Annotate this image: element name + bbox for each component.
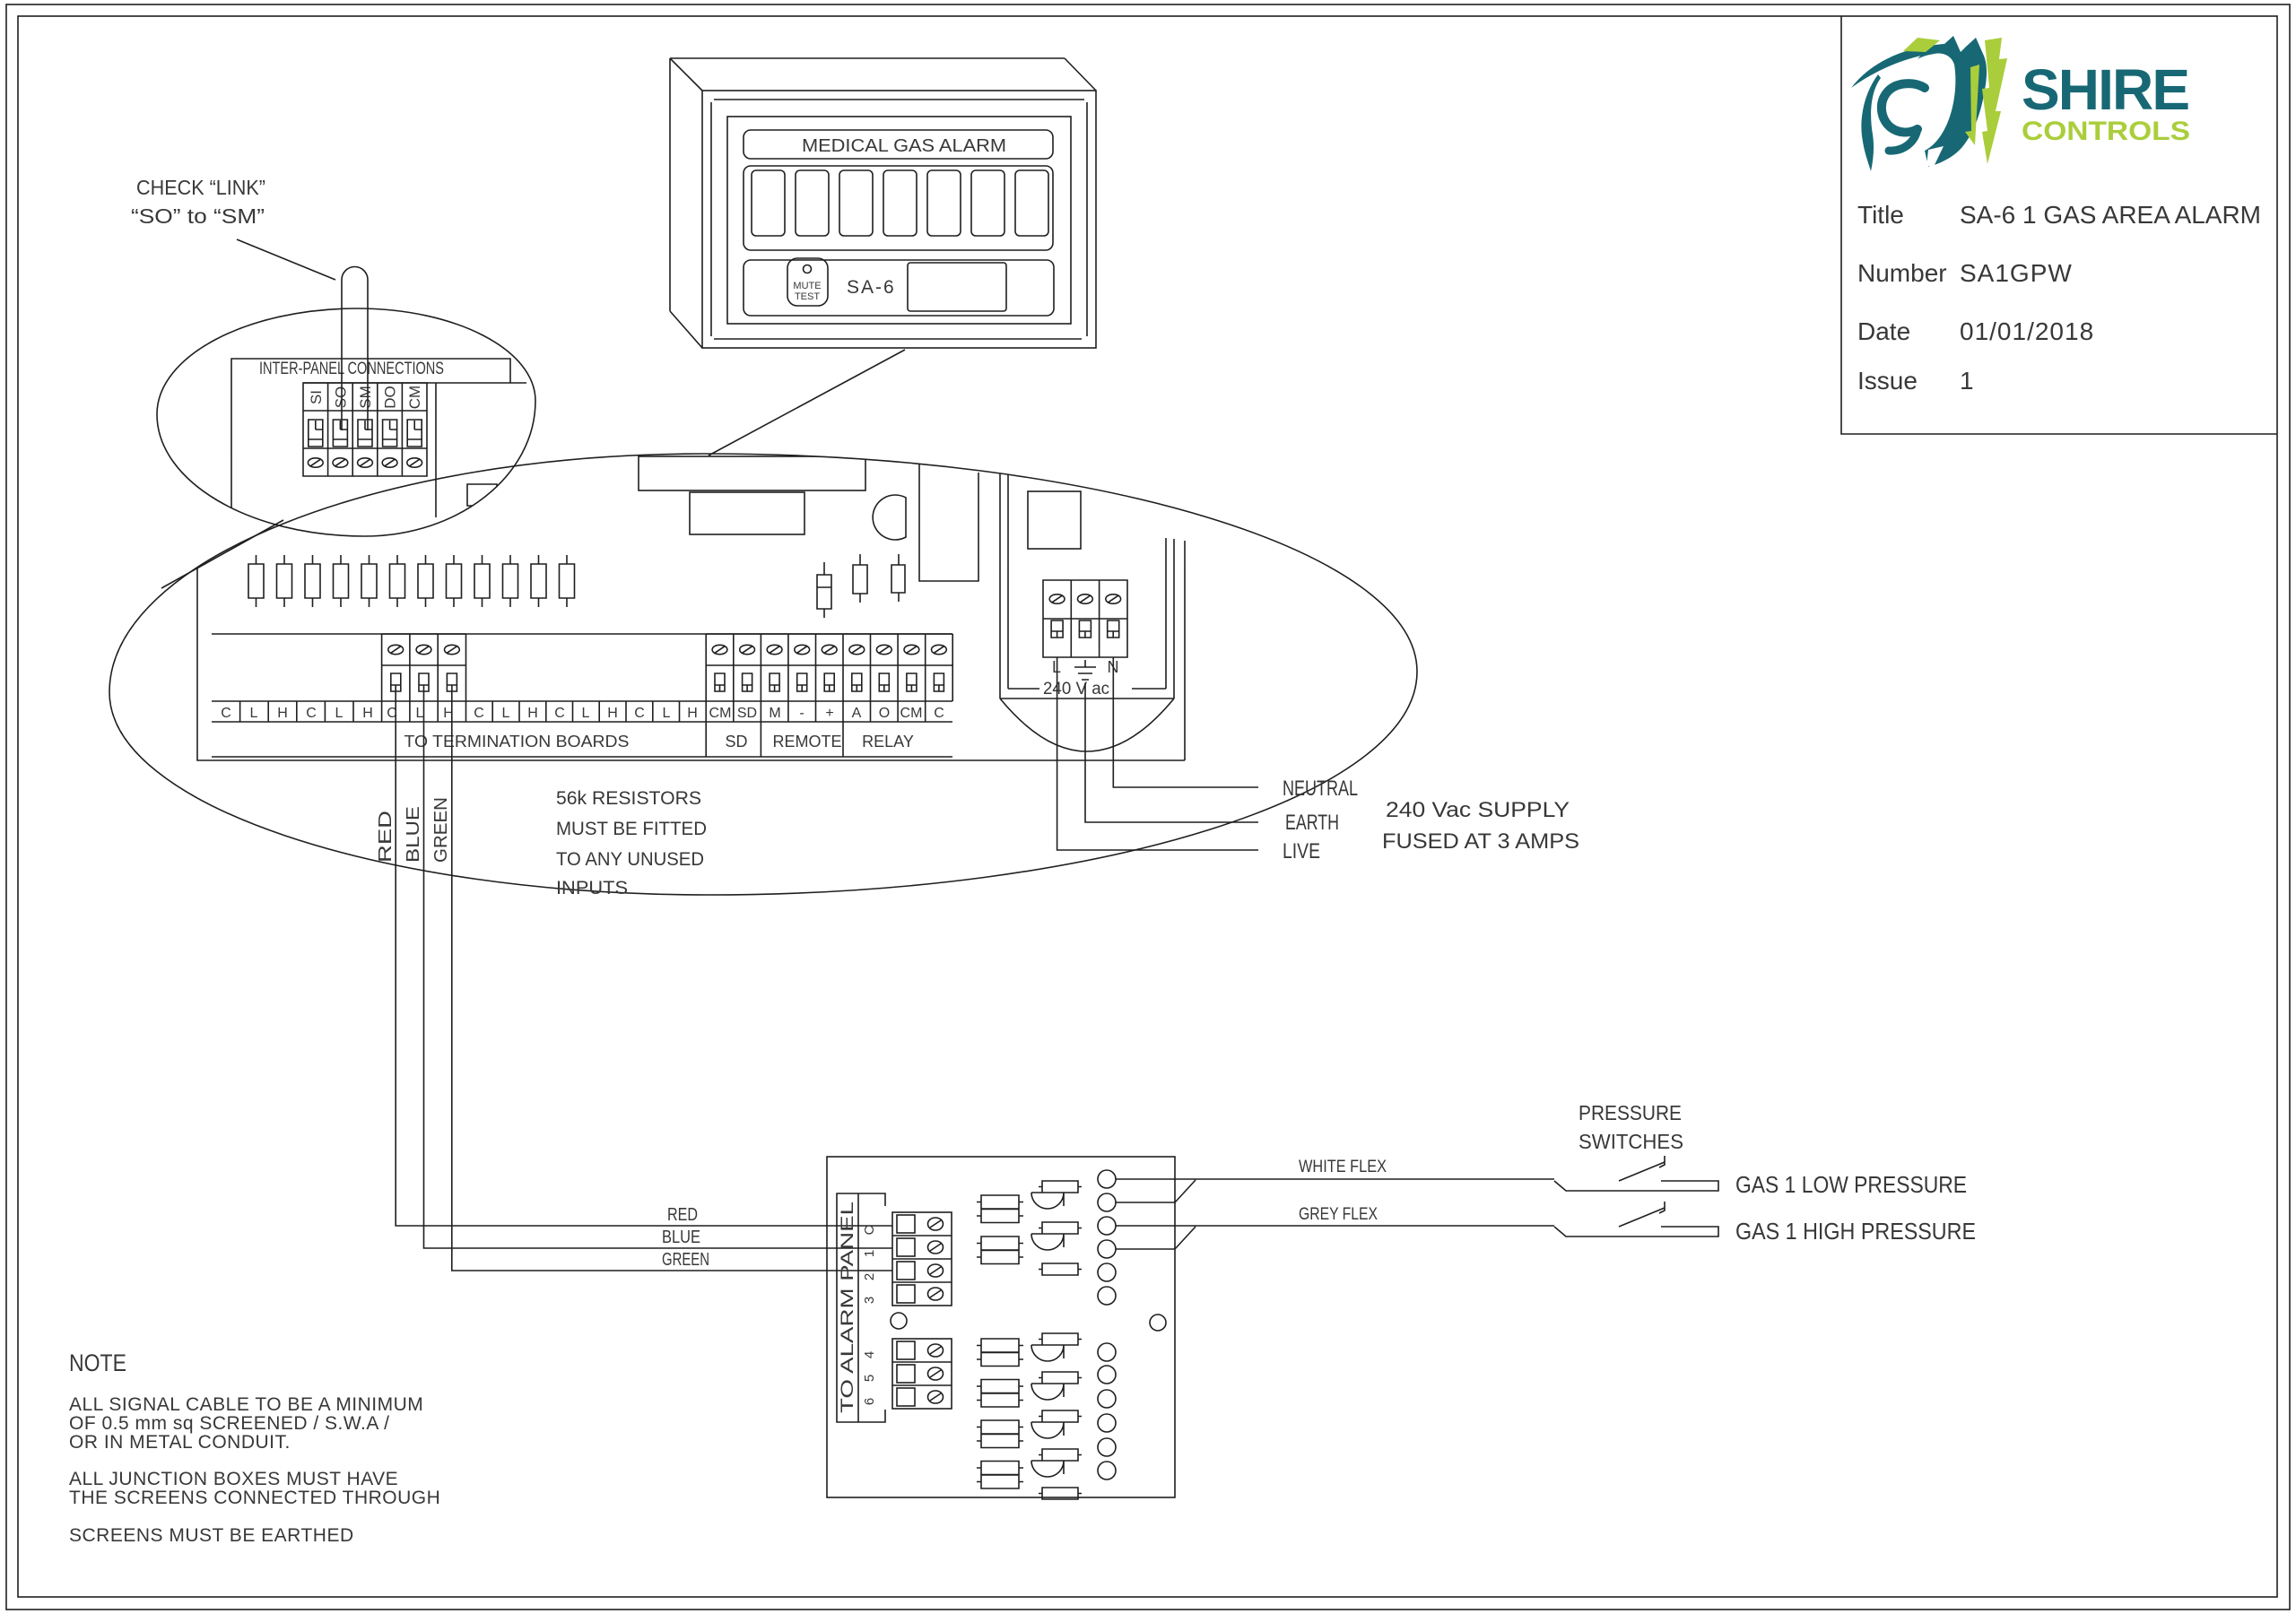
- svg-text:L: L: [502, 706, 510, 721]
- svg-text:Title: Title: [1857, 201, 1904, 229]
- svg-text:C: C: [554, 706, 565, 721]
- svg-text:SO: SO: [332, 386, 349, 409]
- svg-text:SA-6 1 GAS AREA ALARM: SA-6 1 GAS AREA ALARM: [1960, 201, 2261, 229]
- svg-text:GAS 1 HIGH PRESSURE: GAS 1 HIGH PRESSURE: [1735, 1218, 1976, 1245]
- svg-text:A: A: [852, 706, 862, 721]
- svg-text:1: 1: [1960, 367, 1974, 395]
- svg-text:SHIRE: SHIRE: [2022, 57, 2190, 122]
- svg-text:GREEN: GREEN: [662, 1250, 709, 1270]
- svg-text:“SO” to “SM”: “SO” to “SM”: [131, 204, 265, 228]
- svg-text:PRESSURE: PRESSURE: [1578, 1101, 1682, 1124]
- svg-text:SWITCHES: SWITCHES: [1578, 1130, 1683, 1153]
- svg-text:SA-6: SA-6: [847, 277, 896, 298]
- svg-text:CONTROLS: CONTROLS: [2022, 117, 2190, 146]
- svg-text:GREY FLEX: GREY FLEX: [1299, 1205, 1378, 1224]
- svg-text:INPUTS: INPUTS: [556, 878, 628, 898]
- svg-text:SI: SI: [308, 390, 325, 404]
- svg-text:SD: SD: [737, 706, 757, 721]
- svg-text:L: L: [416, 706, 424, 721]
- svg-text:BLUE: BLUE: [404, 806, 423, 863]
- svg-text:H: H: [607, 706, 618, 721]
- svg-text:O: O: [879, 706, 890, 721]
- svg-text:CHECK “LINK”: CHECK “LINK”: [136, 176, 265, 199]
- svg-text:MUTE: MUTE: [793, 281, 821, 291]
- svg-text:240 Vac SUPPLY: 240 Vac SUPPLY: [1386, 798, 1570, 822]
- svg-text:C: C: [221, 706, 231, 721]
- svg-text:RED: RED: [667, 1205, 698, 1225]
- svg-text:240 V ac: 240 V ac: [1043, 680, 1109, 699]
- svg-text:LIVE: LIVE: [1283, 839, 1320, 863]
- svg-text:CM: CM: [709, 706, 732, 721]
- svg-text:-: -: [799, 706, 804, 721]
- svg-text:THE SCREENS CONNECTED THROUGH: THE SCREENS CONNECTED THROUGH: [69, 1488, 440, 1508]
- svg-text:SM: SM: [357, 386, 374, 409]
- svg-text:MUST BE FITTED: MUST BE FITTED: [556, 819, 707, 839]
- svg-text:BLUE: BLUE: [662, 1228, 700, 1247]
- svg-text:ALL SIGNAL CABLE TO BE A MINIM: ALL SIGNAL CABLE TO BE A MINIMUM: [69, 1394, 423, 1415]
- svg-text:NOTE: NOTE: [69, 1349, 126, 1376]
- svg-text:OF 0.5 mm sq SCREENED / S.W.A: OF 0.5 mm sq SCREENED / S.W.A /: [69, 1413, 389, 1434]
- svg-text:TO TERMINATION BOARDS: TO TERMINATION BOARDS: [404, 733, 630, 751]
- svg-text:RELAY: RELAY: [862, 733, 914, 751]
- svg-text:L: L: [335, 706, 344, 721]
- svg-text:SD: SD: [725, 733, 747, 751]
- svg-text:Number: Number: [1857, 259, 1947, 287]
- svg-text:EARTH: EARTH: [1285, 811, 1339, 835]
- svg-text:REMOTE: REMOTE: [772, 733, 841, 751]
- svg-text:C: C: [474, 706, 484, 721]
- svg-text:FUSED AT 3 AMPS: FUSED AT 3 AMPS: [1382, 829, 1579, 854]
- svg-text:01/01/2018: 01/01/2018: [1960, 317, 2094, 345]
- svg-text:OR IN METAL CONDUIT.: OR IN METAL CONDUIT.: [69, 1432, 291, 1453]
- svg-text:RED: RED: [376, 811, 396, 863]
- svg-text:4: 4: [862, 1351, 877, 1358]
- svg-text:H: H: [687, 706, 698, 721]
- svg-text:L: L: [582, 706, 590, 721]
- svg-text:SCREENS MUST BE EARTHED: SCREENS MUST BE EARTHED: [69, 1525, 354, 1546]
- svg-text:INTER-PANEL CONNECTIONS: INTER-PANEL CONNECTIONS: [259, 360, 444, 378]
- svg-text:GAS 1 LOW PRESSURE: GAS 1 LOW PRESSURE: [1735, 1171, 1967, 1198]
- svg-text:WHITE FLEX: WHITE FLEX: [1299, 1158, 1387, 1176]
- svg-text:MEDICAL GAS ALARM: MEDICAL GAS ALARM: [802, 136, 1006, 156]
- svg-text:L: L: [663, 706, 671, 721]
- svg-text:2: 2: [862, 1273, 877, 1280]
- svg-text:1: 1: [862, 1250, 877, 1257]
- svg-text:GREEN: GREEN: [431, 797, 451, 863]
- svg-text:56k RESISTORS: 56k RESISTORS: [556, 788, 701, 809]
- svg-text:DO: DO: [382, 386, 399, 409]
- svg-text:TEST: TEST: [795, 291, 820, 302]
- svg-text:Date: Date: [1857, 317, 1910, 345]
- svg-text:6: 6: [862, 1398, 877, 1405]
- svg-text:Issue: Issue: [1857, 367, 1918, 395]
- svg-text:M: M: [769, 706, 780, 721]
- svg-text:TO ALARM PANEL: TO ALARM PANEL: [839, 1202, 857, 1413]
- svg-text:SA1GPW: SA1GPW: [1960, 259, 2073, 287]
- svg-text:TO ANY UNUSED: TO ANY UNUSED: [556, 849, 704, 870]
- svg-text:H: H: [277, 706, 288, 721]
- svg-text:ALL JUNCTION BOXES MUST HAVE: ALL JUNCTION BOXES MUST HAVE: [69, 1469, 398, 1489]
- svg-text:C: C: [306, 706, 317, 721]
- svg-text:+: +: [825, 706, 833, 721]
- svg-text:NEUTRAL: NEUTRAL: [1283, 777, 1358, 801]
- svg-text:CM: CM: [406, 386, 423, 409]
- svg-text:5: 5: [862, 1375, 877, 1382]
- svg-text:3: 3: [862, 1297, 877, 1304]
- svg-text:H: H: [527, 706, 538, 721]
- svg-text:H: H: [362, 706, 373, 721]
- svg-text:C: C: [634, 706, 645, 721]
- svg-text:C: C: [934, 706, 944, 721]
- svg-text:L: L: [250, 706, 258, 721]
- svg-text:CM: CM: [900, 706, 923, 721]
- svg-text:C: C: [862, 1225, 877, 1235]
